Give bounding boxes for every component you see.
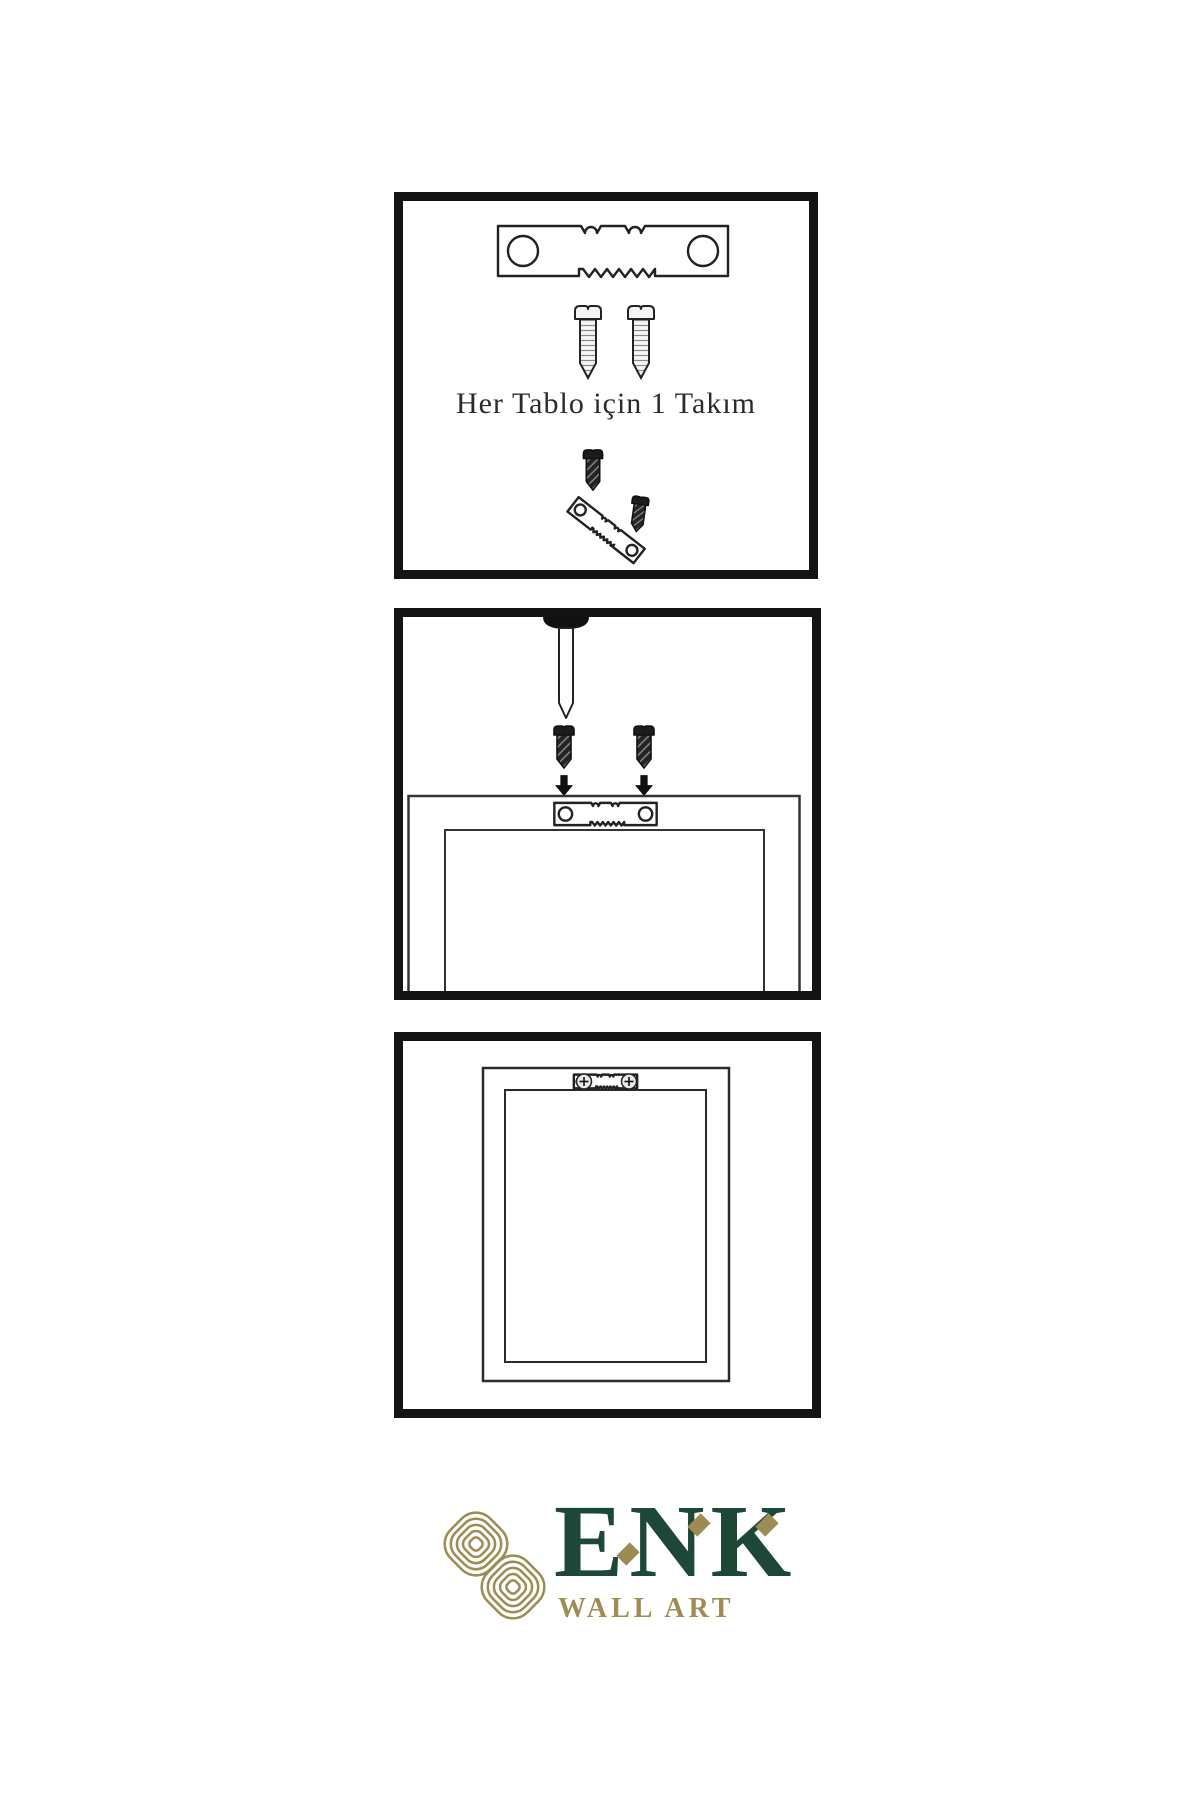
step2-mounting-panel	[394, 608, 821, 1000]
brand-name: ENK	[554, 1490, 804, 1594]
dark-screw-icon	[634, 726, 654, 768]
step1-illustration	[403, 201, 809, 570]
brand-subtitle: WALL ART	[558, 1593, 735, 1625]
frame-back-icon	[409, 796, 800, 991]
down-arrow-icon	[555, 775, 573, 796]
step2-illustration	[403, 617, 812, 991]
down-arrow-icon	[635, 775, 653, 796]
hanger-assembly-icon	[567, 450, 649, 564]
wall-nail-icon	[543, 617, 589, 718]
dark-screw-icon	[583, 450, 602, 490]
sawtooth-hanger-icon	[554, 803, 656, 826]
hardware-set-caption: Her Tablo için 1 Takım	[403, 387, 809, 421]
step3-hanging-panel	[394, 1032, 821, 1418]
framed-picture-icon	[483, 1068, 729, 1381]
step1-hardware-panel: Her Tablo için 1 Takım	[394, 192, 818, 579]
sawtooth-hanger-icon	[498, 226, 728, 277]
dark-screw-icon	[554, 726, 574, 768]
mounted-sawtooth-hanger-icon	[574, 1074, 637, 1089]
screw-head-icon	[577, 1074, 592, 1089]
step3-illustration	[403, 1041, 812, 1409]
interlaced-knot-icon	[438, 1502, 552, 1630]
dark-screw-icon	[628, 496, 649, 533]
screw-head-icon	[622, 1074, 637, 1089]
mounting-screw-icon	[575, 306, 601, 378]
brand-logo: ENK WALL ART	[430, 1492, 810, 1652]
mounting-screw-icon	[628, 306, 654, 378]
